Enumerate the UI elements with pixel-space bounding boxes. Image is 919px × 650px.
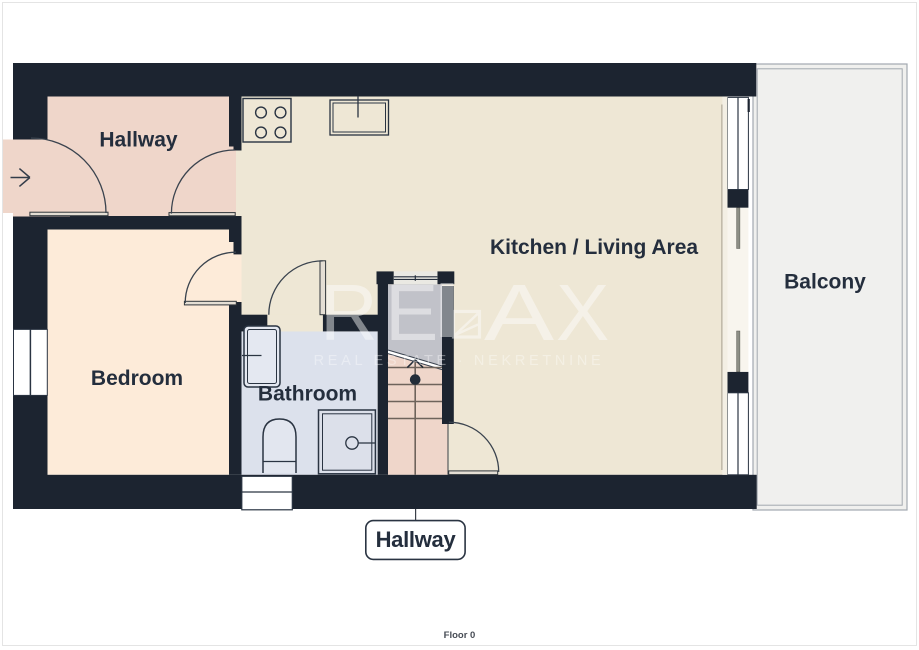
svg-text:Hallway: Hallway: [376, 527, 457, 552]
svg-text:Kitchen / Living Area: Kitchen / Living Area: [490, 236, 698, 259]
svg-text:Balcony: Balcony: [784, 271, 866, 294]
svg-text:Hallway: Hallway: [99, 129, 178, 152]
svg-text:Bathroom: Bathroom: [258, 383, 357, 406]
svg-text:E: E: [385, 268, 438, 357]
svg-text:REAL ESTATE · NEKRETNINE: REAL ESTATE · NEKRETNINE: [314, 353, 605, 369]
svg-text:Bedroom: Bedroom: [91, 367, 183, 390]
svg-text:A: A: [484, 268, 555, 357]
svg-text:X: X: [556, 268, 609, 357]
svg-text:R: R: [320, 268, 378, 357]
svg-text:Floor 0: Floor 0: [444, 630, 476, 641]
